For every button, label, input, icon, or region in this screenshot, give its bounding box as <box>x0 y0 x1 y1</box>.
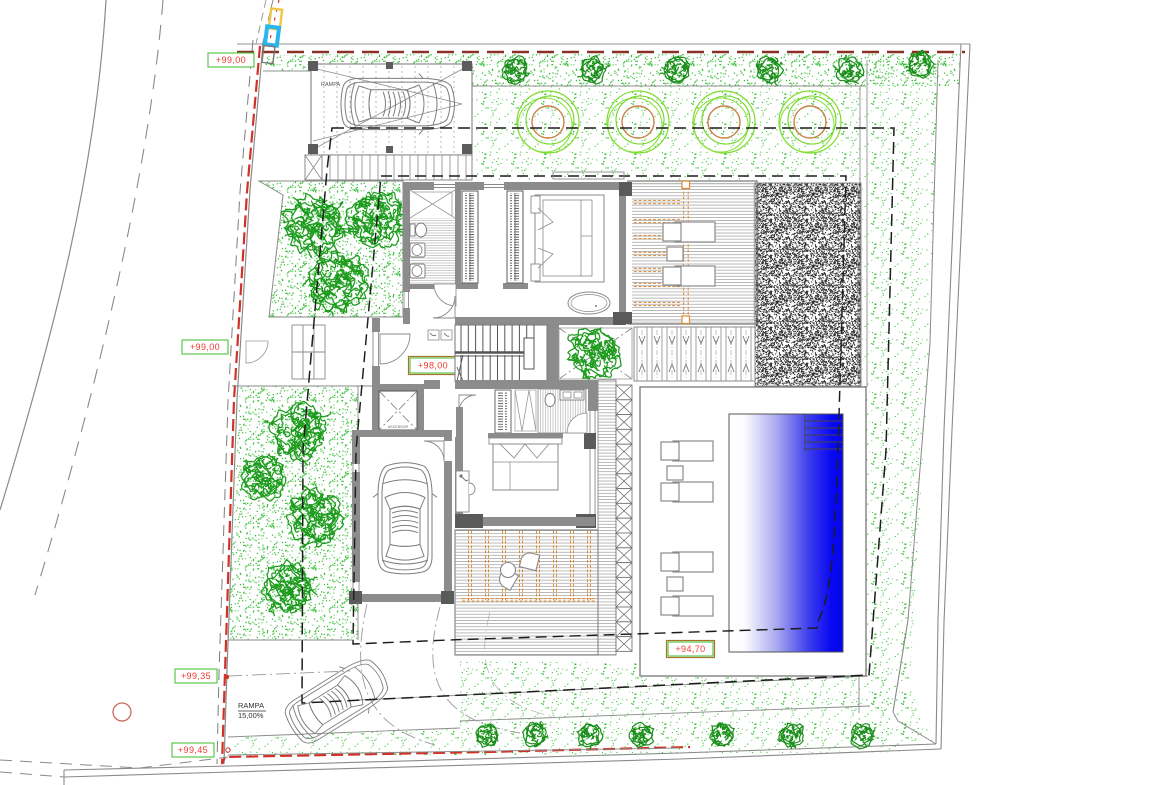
svg-text:15,00%: 15,00% <box>238 711 264 720</box>
svg-text:RAMPA: RAMPA <box>321 82 340 88</box>
svg-text:+99,00: +99,00 <box>216 55 246 65</box>
svg-text:+99,35: +99,35 <box>181 671 211 681</box>
svg-text:+94,70: +94,70 <box>675 644 705 654</box>
svg-text:ASCENSOR: ASCENSOR <box>388 425 409 429</box>
svg-text:+98,00: +98,00 <box>418 361 448 371</box>
svg-text:RAMPA: RAMPA <box>238 701 264 710</box>
svg-text:+99,45: +99,45 <box>178 745 208 755</box>
svg-text:+99,00: +99,00 <box>190 342 220 352</box>
